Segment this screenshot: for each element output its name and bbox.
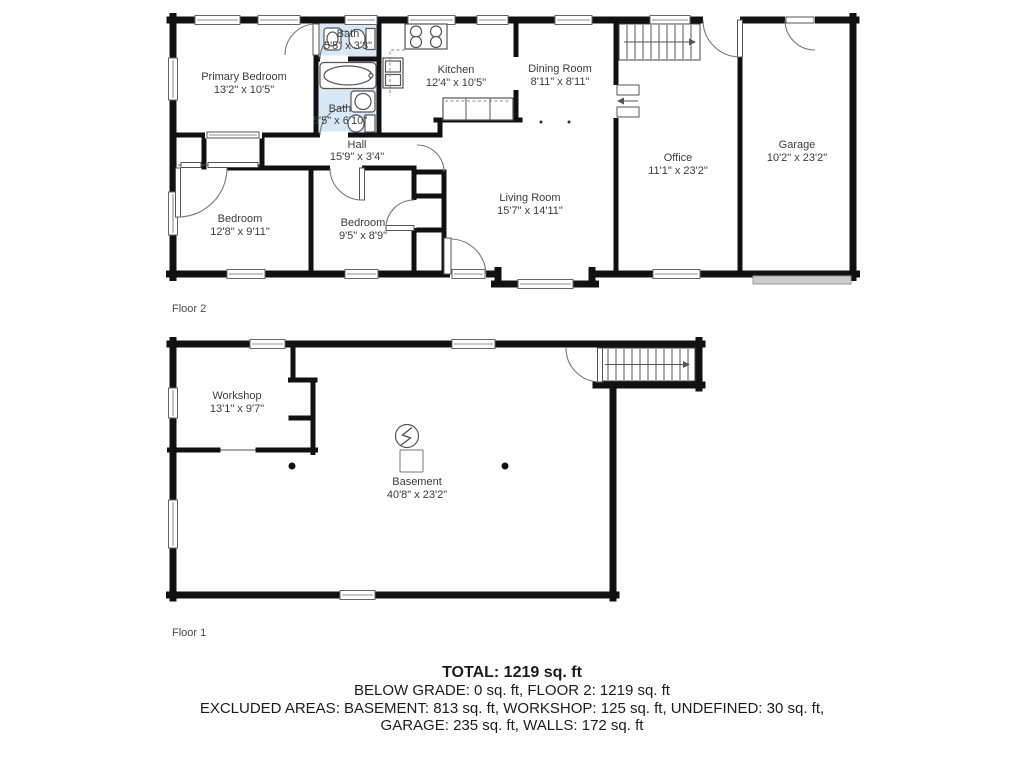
floor1-windows	[169, 340, 496, 600]
door-leaf	[176, 168, 181, 217]
furnace-icon	[396, 425, 419, 448]
summary-total: TOTAL: 1219 sq. ft	[0, 663, 1024, 682]
room-label-dining-room: Dining Room	[528, 63, 592, 75]
room-label-workshop: Workshop	[212, 390, 261, 402]
window	[653, 270, 700, 279]
door-arc	[703, 20, 740, 57]
window	[169, 388, 178, 418]
staircase-floor2	[619, 24, 700, 60]
garage-door	[753, 276, 851, 284]
room-dims-bath-lower: 5'5" x 6'10"	[313, 115, 367, 127]
room-label-basement: Basement	[392, 476, 442, 488]
window	[169, 58, 178, 100]
window	[408, 16, 455, 25]
summary-excluded-2: GARAGE: 235 sq. ft, WALLS: 172 sq. ft	[0, 717, 1024, 735]
room-label-bedroom-2: Bedroom	[341, 217, 386, 229]
closet-door-arc	[417, 145, 444, 172]
window	[227, 270, 265, 279]
room-label-hall: Hall	[348, 139, 367, 151]
summary-below-grade: BELOW GRADE: 0 sq. ft, FLOOR 2: 1219 sq.…	[0, 682, 1024, 700]
door-leaf	[786, 17, 814, 23]
window	[345, 270, 378, 279]
staircase-floor1	[566, 348, 695, 382]
room-dims-kitchen: 12'4" x 10'5"	[426, 77, 486, 89]
sink-icon	[351, 91, 375, 112]
window	[250, 340, 285, 349]
room-label-bath-top: Bath	[337, 28, 360, 40]
window	[650, 16, 690, 25]
support-post	[289, 463, 296, 470]
window	[452, 270, 485, 279]
room-label-living-room: Living Room	[499, 192, 560, 204]
floorplan-page: Primary Bedroom 13'2" x 10'5" Bath 5'5" …	[0, 0, 1024, 768]
summary-excluded-1: EXCLUDED AREAS: BASEMENT: 813 sq. ft, WO…	[0, 700, 1024, 718]
window	[195, 16, 240, 25]
door-leaf	[738, 20, 743, 57]
door-arc	[386, 200, 414, 228]
room-label-kitchen: Kitchen	[438, 64, 475, 76]
window	[258, 16, 300, 25]
room-dims-bedroom-2: 9'5" x 8'9"	[339, 230, 387, 242]
room-dims-bedroom-1: 12'8" x 9'11"	[210, 226, 270, 238]
floor2-doors	[176, 17, 816, 274]
room-label-bedroom-1: Bedroom	[218, 213, 263, 225]
floorplan-svg: Primary Bedroom 13'2" x 10'5" Bath 5'5" …	[0, 0, 1024, 768]
room-dims-bath-top: 5'5" x 3'3"	[324, 40, 372, 52]
door-arc	[330, 168, 362, 200]
room-dims-basement: 40'8" x 23'2"	[387, 489, 447, 501]
floor2-outer-walls	[170, 17, 857, 285]
bay-window	[518, 280, 573, 289]
door-leaf	[360, 168, 365, 200]
stove-icon	[405, 24, 447, 49]
room-dims-office: 11'1" x 23'2"	[648, 165, 708, 177]
door-arc	[285, 24, 316, 55]
window	[345, 16, 377, 25]
front-door-leaf	[444, 238, 451, 274]
floor2-door-gaps	[205, 16, 815, 279]
bathtub-icon	[320, 63, 376, 89]
room-dims-living-room: 15'7" x 14'11"	[497, 205, 563, 217]
floor1-plan: Workshop 13'1" x 9'7" Basement 40'8" x 2…	[169, 340, 703, 640]
area-summary: TOTAL: 1219 sq. ft BELOW GRADE: 0 sq. ft…	[0, 663, 1024, 735]
door-leaf	[386, 226, 414, 231]
window	[452, 340, 495, 349]
window	[340, 591, 375, 600]
room-dims-garage: 10'2" x 23'2"	[767, 152, 827, 164]
window	[477, 16, 508, 25]
door-leaf	[598, 348, 603, 382]
door-arc	[566, 348, 600, 382]
door-leaf	[313, 24, 319, 55]
kitchen-counter	[443, 98, 513, 120]
room-label-primary-bedroom: Primary Bedroom	[201, 71, 287, 83]
room-label-office: Office	[664, 152, 693, 164]
floor2-label: Floor 2	[172, 303, 206, 315]
room-dims-dining-room: 8'11" x 8'11"	[531, 76, 590, 88]
front-door-arc	[451, 239, 486, 274]
side-entry-steps	[617, 85, 639, 117]
kitchen-sink-icon	[383, 58, 403, 88]
room-label-bath-lower: Bath	[329, 103, 352, 115]
utility-box	[400, 450, 423, 472]
room-dims-workshop: 13'1" x 9'7"	[210, 403, 264, 415]
window	[169, 500, 178, 548]
door-arc	[178, 168, 227, 217]
room-dims-hall: 15'9" x 3'4"	[330, 151, 384, 163]
floor1-label: Floor 1	[172, 627, 206, 639]
room-dims-primary-bedroom: 13'2" x 10'5"	[214, 84, 274, 96]
support-post	[502, 463, 509, 470]
room-label-garage: Garage	[779, 139, 816, 151]
window	[555, 16, 592, 25]
floor2-plan: Primary Bedroom 13'2" x 10'5" Bath 5'5" …	[169, 16, 857, 316]
basement-fixtures	[289, 425, 509, 473]
